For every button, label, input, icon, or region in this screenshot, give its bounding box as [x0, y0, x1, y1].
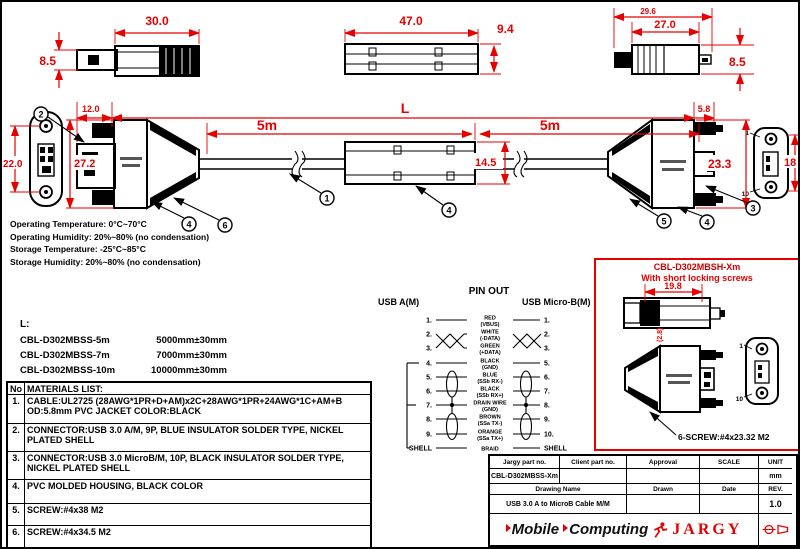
length-list: L: CBL-D302MBSS-5m 5000mm±30mm CBL-D302M… [20, 319, 227, 378]
material-desc: CONNECTOR:USB 3.0 A/M, 9P, BLUE INSULATO… [25, 424, 370, 452]
pin-left: 1. [426, 318, 432, 325]
dim-end-offset: 5.8 [698, 104, 711, 114]
wire-name: GREEN [480, 344, 500, 350]
wire-signal: (SSa TX+) [477, 436, 503, 442]
pin-right: 9. [544, 417, 550, 424]
brand-jargy: JARGY [672, 521, 742, 539]
short-micro-front-view: 1 10 [736, 338, 778, 404]
material-no: 1. [8, 395, 25, 424]
short-pin1-label: 1 [739, 343, 743, 350]
dim-screw-depth: (2.8) [657, 328, 664, 342]
client-part-value [560, 469, 627, 484]
dim-label: 27.0 [654, 19, 675, 31]
dim-total-length: L [401, 100, 410, 116]
rev-value: 1.0 [759, 495, 792, 514]
short-side-view [624, 298, 725, 328]
header-date: Date [700, 484, 759, 495]
micro-b-front-view: 1 10 [742, 128, 788, 198]
length-row: CBL-D302MBSS-5m 5000mm±30mm [20, 333, 227, 348]
scale-value [700, 469, 759, 484]
dim-micro-front-height: 18 [784, 157, 796, 169]
pinout-title: PIN OUT [469, 286, 510, 297]
pin-left: 7. [426, 403, 432, 410]
env-line: Storage Temperature: -25°C~85°C [10, 243, 209, 256]
material-no: 5. [8, 504, 25, 526]
env-line: Operating Temperature: 0°C~70°C [10, 218, 209, 231]
header-approval: Approval [627, 456, 700, 469]
pin-right: SHELL [544, 446, 568, 453]
length-list-label: L: [20, 319, 227, 330]
brand-mobile: Mobile [506, 521, 560, 538]
short-pin10-label: 10 [736, 396, 744, 403]
dim-overmold-height: 9.4 [480, 22, 514, 74]
dim-label: 29.6 [640, 7, 656, 16]
wire-name: ORANGE [478, 430, 502, 436]
pin-right: 1. [544, 318, 550, 325]
dim-right-length: 5m [540, 117, 560, 133]
brand-flag-icon [506, 524, 511, 532]
wire-name: BLUE [483, 373, 498, 379]
wire-name: DRAIN WIRE [473, 401, 507, 407]
brand-mobile-text: Mobile [512, 521, 560, 538]
dim-label: 30.0 [145, 14, 169, 28]
env-line: Storage Humidity: 20%~80% (no condensati… [10, 256, 209, 269]
header-rev: REV. [759, 484, 792, 495]
material-no: 6. [8, 526, 25, 549]
pin-left: 5. [426, 375, 432, 382]
callout-2: 2 [38, 110, 43, 120]
cable-left [199, 151, 345, 177]
short-screw-panel: CBL-D302MBSH-Xm With short locking screw… [595, 259, 799, 450]
callout-4c: 4 [704, 218, 709, 228]
length-row: CBL-D302MBSS-7m 7000mm±30mm [20, 348, 227, 363]
dim-offset: 12.0 [82, 104, 100, 114]
wire-signal: (SSb RX-) [477, 379, 503, 385]
usb-a-side-view [77, 46, 199, 76]
projection-symbol-icon [762, 523, 789, 536]
pin-right: 6. [544, 375, 550, 382]
drawing-name-value: USB 3.0 A to MicroB Cable M/M [490, 495, 627, 514]
approval-value [627, 469, 700, 484]
pin-right: 5. [544, 361, 550, 368]
callout-6: 6 [222, 221, 227, 231]
brand-row: Mobile Computing JARGY [490, 514, 759, 545]
dim-micro-height: 23.3 [708, 157, 732, 171]
part-number: CBL-D302MBSS-7m [20, 348, 132, 363]
length-row: CBL-D302MBSS-10m 10000mm±30mm [20, 363, 227, 378]
pinout-diagram: PIN OUT USB A(M) USB Micro-B(M) [378, 286, 591, 453]
brand-flag-icon [563, 524, 568, 532]
material-no: 3. [8, 452, 25, 480]
env-line: Operating Humidity: 20%~80% (no condensa… [10, 231, 209, 244]
wire-name: RED [484, 316, 496, 322]
pin-left: 9. [426, 432, 432, 439]
ferrite-overmold [345, 142, 475, 184]
dim-housing-height: 27.2 [74, 158, 95, 170]
material-desc: CONNECTOR:USB 3.0 MicroB/M, 10P, BLACK I… [25, 452, 370, 480]
engineering-drawing-sheet: 30.0 8.5 47.0 9.4 29.6 [0, 0, 800, 549]
dim-micro-height: 8.5 [701, 28, 754, 91]
dim-ferrite-height: 14.5 [475, 157, 496, 169]
dim-usb-a-width: 30.0 [115, 14, 199, 44]
pinout-labels: 1. RED (VBUS) 1. 2. WHITE (-DATA) 2. 3. … [409, 316, 568, 453]
part-length: 10000mm±30mm [132, 363, 227, 378]
header-drawn: Drawn [627, 484, 700, 495]
brand-computing-text: Computing [569, 521, 648, 538]
dim-usb-a-height: 8.5 [39, 32, 78, 88]
short-panel-part: CBL-D302MBSH-Xm [654, 262, 741, 272]
dim-label: 8.5 [39, 54, 56, 68]
drawn-value [627, 495, 700, 514]
wire-signal: (SSa TX-) [478, 421, 503, 427]
pin-right: 7. [544, 389, 550, 396]
callout-4b: 4 [446, 206, 451, 216]
pin-left: SHELL [409, 446, 433, 453]
dim-overmold-width: 47.0 [345, 14, 478, 42]
environment-notes: Operating Temperature: 0°C~70°C Operatin… [10, 218, 209, 268]
pin-left: 8. [426, 417, 432, 424]
material-no: 2. [8, 424, 25, 452]
date-value [700, 495, 759, 514]
wire-name: WHITE [481, 330, 499, 336]
dim-screw-length: 19.8 [664, 281, 682, 291]
wire-signal: (GND) [482, 407, 498, 413]
wire-signal: (GND) [482, 365, 498, 371]
header-client-part: Client part no. [560, 456, 627, 469]
pin-left: 3. [426, 346, 432, 353]
brand-computing: Computing [563, 521, 648, 538]
wire-name: BLACK [480, 387, 499, 393]
wire-signal: (-DATA) [480, 336, 500, 342]
wire-name: BLACK [480, 359, 499, 365]
materials-table: No MATERIALS LIST: 1. CABLE:UL2725 (28AW… [6, 381, 372, 549]
material-desc: CABLE:UL2725 (28AWG*1PR+D+AM)x2C+28AWG*1… [25, 395, 370, 424]
materials-title: MATERIALS LIST: [25, 383, 370, 395]
material-desc: SCREW:#4x34.5 M2 [25, 526, 370, 549]
dim-label: 8.5 [729, 55, 746, 69]
material-desc: PVC MOLDED HOUSING, BLACK COLOR [25, 480, 370, 504]
header-unit: UNIT [759, 456, 792, 469]
pinout-right-header: USB Micro-B(M) [522, 297, 591, 307]
dim-left-length: 5m [257, 117, 277, 133]
wire-signal: (+DATA) [479, 350, 501, 356]
dim-label: 9.4 [497, 22, 514, 36]
pin-left: 6. [426, 389, 432, 396]
wire-name: BRAID [481, 447, 498, 453]
part-number: CBL-D302MBSS-5m [20, 333, 132, 348]
short-panel-note: With short locking screws [641, 273, 752, 283]
pin-right: 10. [544, 432, 554, 439]
wire-signal: (SSb RX+) [477, 393, 504, 399]
dim-front-height: 22.0 [3, 159, 23, 170]
callout-1: 1 [324, 194, 329, 204]
material-no: 4. [8, 480, 25, 504]
dim-micro-inner-width: 27.0 [632, 19, 699, 43]
projection-symbol-cell [759, 514, 792, 545]
pin-right: 2. [544, 332, 550, 339]
short-screw-label: 6-SCREW:#4x23.32 M2 [678, 432, 770, 442]
part-no-value: CBL-D302MBSS-Xm [490, 469, 560, 484]
part-length: 5000mm±30mm [132, 333, 227, 348]
wire-signal: (VBUS) [481, 322, 500, 328]
header-jargy-part: Jargy part no. [490, 456, 560, 469]
overmold-top-view [345, 44, 478, 74]
runner-icon [652, 521, 668, 539]
pin-left: 2. [426, 332, 432, 339]
part-number: CBL-D302MBSS-10m [20, 363, 132, 378]
dim-label: 47.0 [399, 14, 423, 28]
material-desc: SCREW:#4x38 M2 [25, 504, 370, 526]
header-scale: SCALE [700, 456, 759, 469]
part-length: 7000mm±30mm [132, 348, 227, 363]
pin-right: 8. [544, 403, 550, 410]
materials-col-header: No [8, 383, 25, 395]
callout-5: 5 [661, 217, 666, 227]
wire-name: BROWN [479, 415, 500, 421]
callout-3: 3 [750, 204, 755, 214]
pin-right: 3. [544, 346, 550, 353]
header-drawing-name: Drawing Name [490, 484, 627, 495]
short-connector-view [625, 346, 723, 412]
micro-b-side-view [614, 45, 711, 74]
pin-left: 4. [426, 361, 432, 368]
unit-value: mm [759, 469, 792, 484]
pinout-wires [407, 320, 541, 448]
pinout-left-header: USB A(M) [378, 297, 419, 307]
title-block: Jargy part no. Client part no. Approval … [488, 454, 798, 547]
